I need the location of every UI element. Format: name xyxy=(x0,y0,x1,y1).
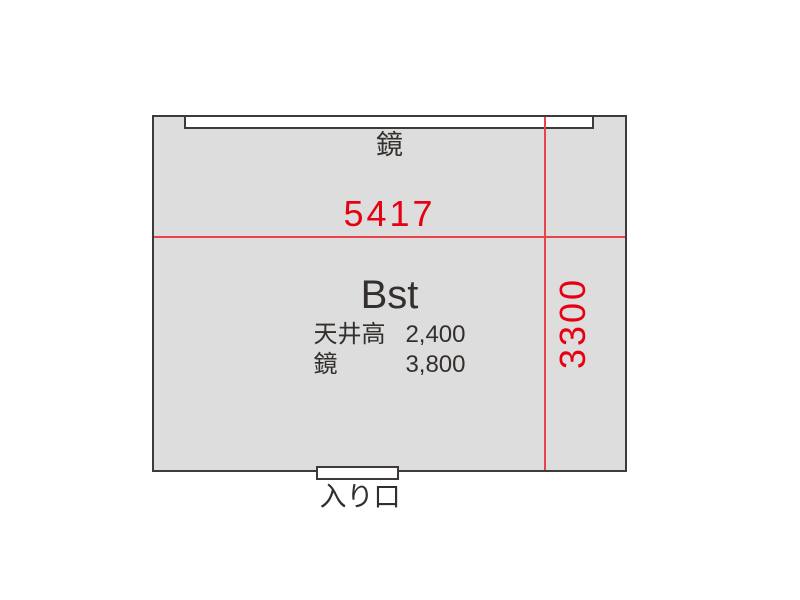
ceiling-height-value: 2,400 xyxy=(394,320,466,350)
room-spec-table: 天井高 2,400 鏡 3,800 xyxy=(314,320,466,380)
entrance-opening xyxy=(316,466,399,480)
room-name: Bst xyxy=(152,272,627,318)
mirror-width-label: 鏡 xyxy=(314,350,386,380)
width-dimension-value: 5417 xyxy=(152,194,627,234)
mirror-label: 鏡 xyxy=(152,129,627,161)
width-dimension-line xyxy=(154,236,625,238)
floor-plan: 鏡 5417 3300 Bst 天井高 2,400 鏡 3,800 入り口 xyxy=(0,0,800,600)
mirror-width-value: 3,800 xyxy=(394,350,466,380)
mirror-strip xyxy=(184,115,594,129)
ceiling-height-label: 天井高 xyxy=(314,320,386,350)
room-info: Bst 天井高 2,400 鏡 3,800 xyxy=(152,272,627,380)
entrance-label: 入り口 xyxy=(260,481,460,513)
